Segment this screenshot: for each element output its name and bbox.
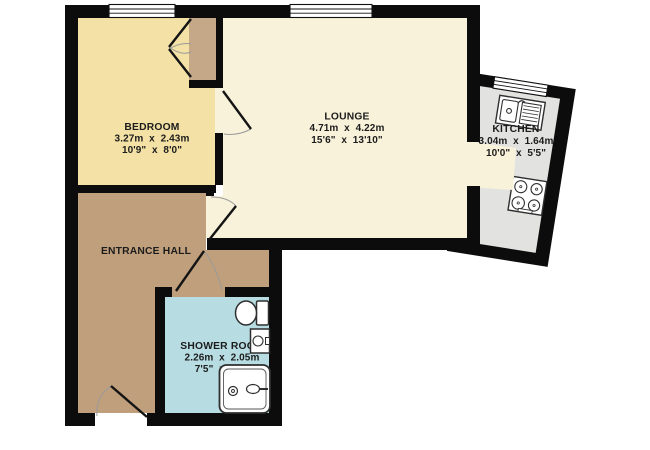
shower-icon <box>220 365 271 413</box>
lounge-dims-metric: 4.71m x 4.22m <box>310 123 385 134</box>
floorplan-drawing: BEDROOM 3.27m x 2.43m 10'9" x 8'0" LOUNG… <box>0 0 650 450</box>
shower-doorway-floor <box>172 287 225 297</box>
lounge-dims-imperial: 15'6" x 13'10" <box>311 135 383 146</box>
bedroom-doorway-floor <box>215 88 223 133</box>
entrance-hall-label: ENTRANCE HALL <box>101 246 191 257</box>
hall-floor-upper <box>78 193 206 287</box>
kitchen-dims-imperial: 10'0" x 5'5" <box>486 148 546 159</box>
hob-icon <box>508 176 547 215</box>
hall-floor-nook <box>206 250 269 287</box>
shower-dims-metric: 2.26m x 2.05m <box>185 353 260 364</box>
basin-icon <box>251 329 270 353</box>
lounge-window <box>290 5 372 18</box>
kitchen-dims-metric: 3.04m x 1.64m <box>479 136 554 147</box>
floorplan-page: BEDROOM 3.27m x 2.43m 10'9" x 8'0" LOUNG… <box>0 0 650 450</box>
toilet-icon <box>236 301 269 325</box>
lounge-label: LOUNGE <box>324 112 369 123</box>
bedroom-window <box>109 5 175 18</box>
hall-floor-lower <box>78 287 155 413</box>
closet-floor <box>189 18 216 80</box>
bedroom-dims-metric: 3.27m x 2.43m <box>115 134 190 145</box>
kitchen-label: KITCHEN <box>492 124 539 135</box>
bedroom-label: BEDROOM <box>124 122 179 133</box>
bedroom-dims-imperial: 10'9" x 8'0" <box>122 145 182 156</box>
